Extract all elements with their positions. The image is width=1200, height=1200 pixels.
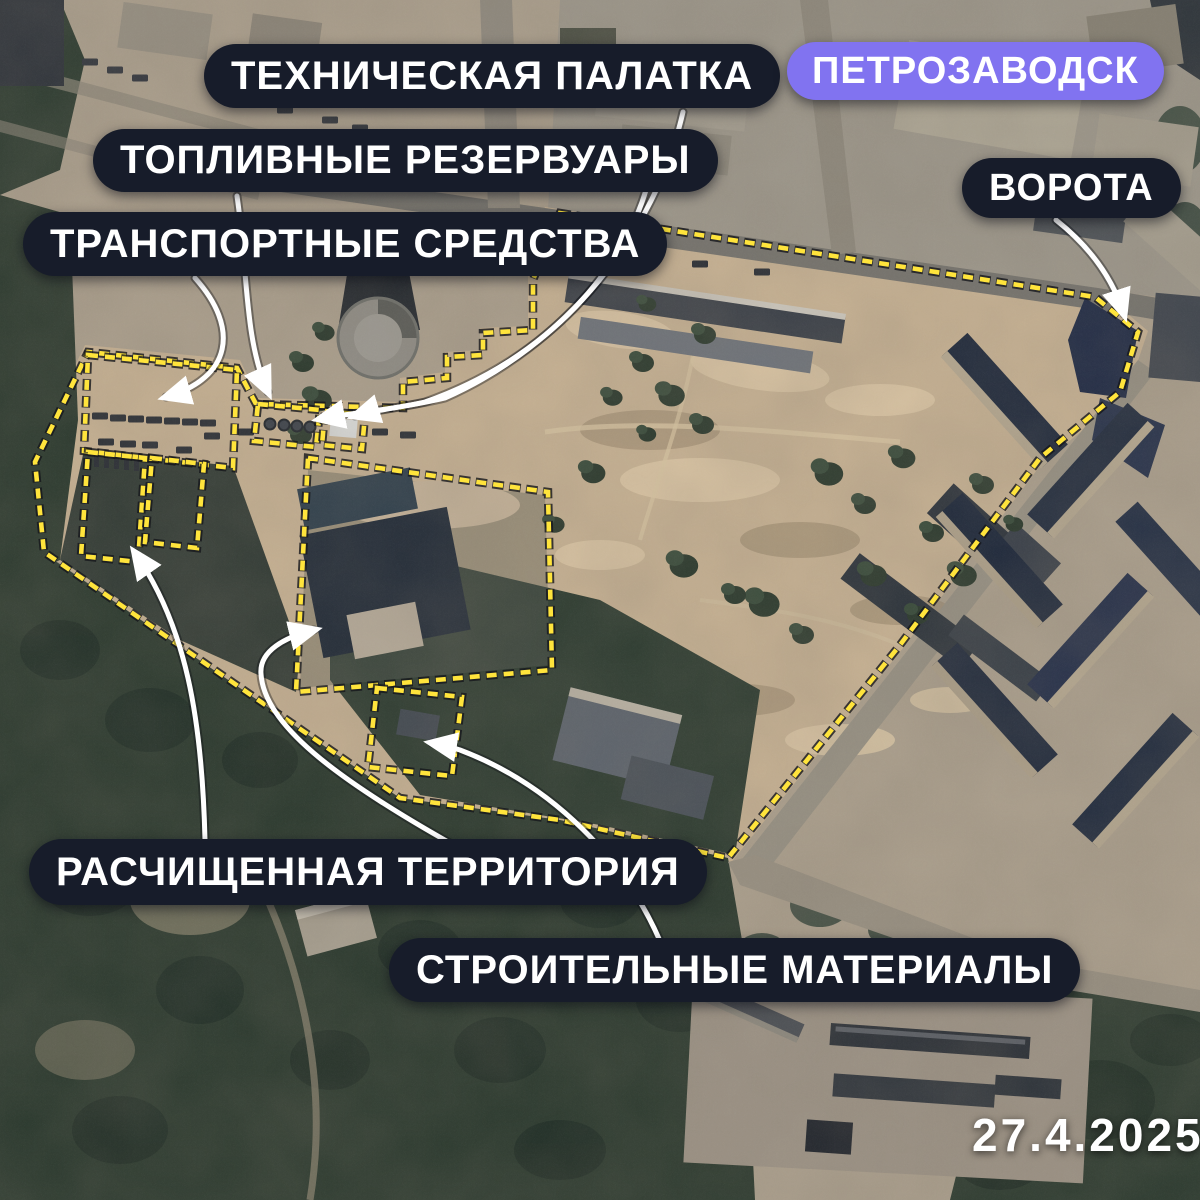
date-stamp: 27.4.2025 (972, 1108, 1200, 1162)
label-fuel-reservoirs: ТОПЛИВНЫЕ РЕЗЕРВУАРЫ (93, 129, 718, 192)
label-vehicles: ТРАНСПОРТНЫЕ СРЕДСТВА (23, 212, 667, 276)
label-gate: ВОРОТА (962, 158, 1181, 218)
annotated-satellite-graphic: ТЕХНИЧЕСКАЯ ПАЛАТКА ТОПЛИВНЫЕ РЕЗЕРВУАРЫ… (0, 0, 1200, 1200)
label-cleared-territory: РАСЧИЩЕННАЯ ТЕРРИТОРИЯ (29, 839, 707, 905)
label-technical-tent: ТЕХНИЧЕСКАЯ ПАЛАТКА (204, 44, 780, 108)
city-badge: ПЕТРОЗАВОДСК (787, 42, 1164, 100)
label-construction-materials: СТРОИТЕЛЬНЫЕ МАТЕРИАЛЫ (389, 938, 1080, 1002)
